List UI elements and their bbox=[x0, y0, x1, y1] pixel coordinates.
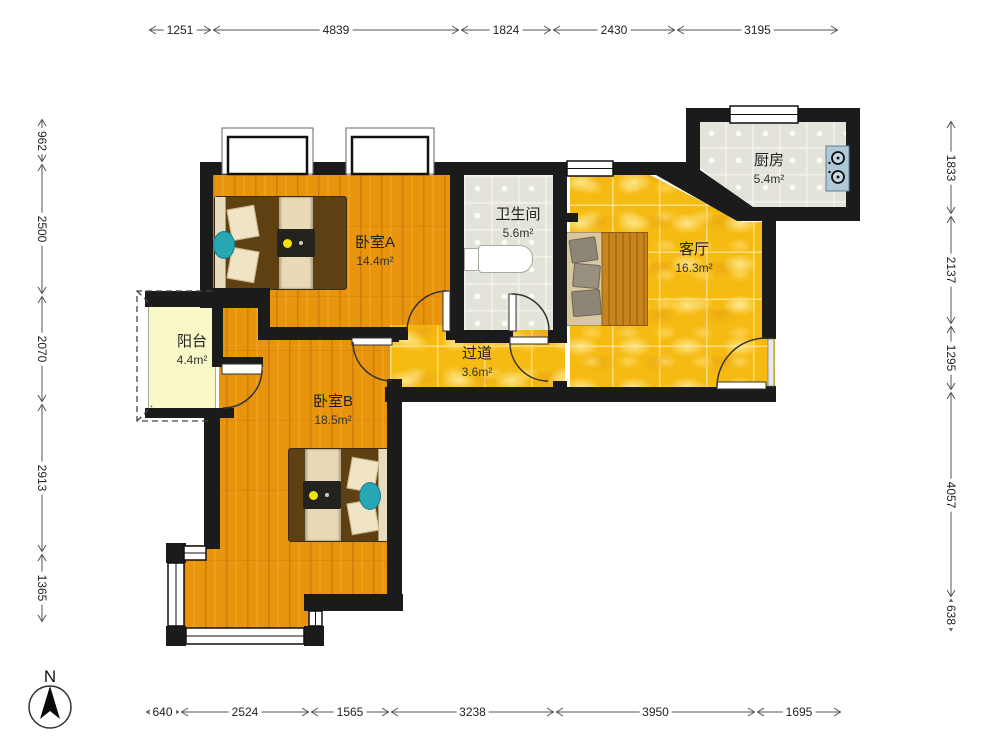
room-label-kitchen: 厨房 5.4m² bbox=[754, 151, 785, 187]
dimension-label: 2070 bbox=[35, 333, 49, 366]
stove bbox=[826, 146, 849, 191]
kitchen-window bbox=[730, 106, 798, 123]
dimension-label: 3195 bbox=[741, 23, 774, 37]
north-label: N bbox=[44, 667, 56, 687]
north-arrow-icon bbox=[29, 686, 71, 728]
dimension-label: 1565 bbox=[334, 705, 367, 719]
bedroom-a-door bbox=[407, 291, 450, 331]
dimension-label: 1251 bbox=[164, 23, 197, 37]
plan-overlay bbox=[0, 0, 1000, 750]
bay-window bbox=[228, 137, 307, 174]
floorplan-canvas: 卧室A 14.4m² 卫生间 5.6m² 厨房 5.4m² 客厅 16.3m² … bbox=[0, 0, 1000, 750]
dimension-label: 2500 bbox=[35, 213, 49, 246]
living-room-door bbox=[510, 337, 548, 381]
room-label-bedroom-b: 卧室B 18.5m² bbox=[313, 392, 353, 428]
room-label-balcony: 阳台 4.4m² bbox=[177, 332, 208, 368]
dimension-label: 1824 bbox=[490, 23, 523, 37]
balcony-door bbox=[222, 364, 262, 408]
dimension-label: 2430 bbox=[598, 23, 631, 37]
bay-window-corner bbox=[184, 546, 206, 560]
dimension-label: 4839 bbox=[320, 23, 353, 37]
entry-door bbox=[717, 338, 766, 389]
room-label-bedroom-a: 卧室A 14.4m² bbox=[355, 233, 395, 269]
walls bbox=[145, 108, 860, 646]
bay-window-bottom bbox=[186, 628, 304, 644]
bay-window-right bbox=[309, 611, 322, 626]
dimension-label: 962 bbox=[35, 127, 49, 153]
dimension-label: 2524 bbox=[229, 705, 262, 719]
living-room-window bbox=[567, 161, 613, 176]
dimension-label: 1695 bbox=[783, 705, 816, 719]
dimension-label: 4057 bbox=[944, 478, 958, 511]
room-label-bathroom: 卫生间 5.6m² bbox=[495, 205, 540, 241]
dimension-label: 2137 bbox=[944, 254, 958, 287]
dimension-label: 2913 bbox=[35, 462, 49, 495]
dimension-label: 638 bbox=[944, 602, 958, 628]
room-label-hallway: 过道 3.6m² bbox=[462, 344, 493, 380]
entry-threshold bbox=[768, 339, 774, 386]
bedroom-b-door bbox=[352, 338, 392, 381]
dimension-label: 1833 bbox=[944, 151, 958, 184]
dimension-label: 1365 bbox=[35, 572, 49, 605]
dimension-label: 640 bbox=[149, 705, 175, 719]
room-label-living-room: 客厅 16.3m² bbox=[675, 240, 712, 276]
dimension-label: 1295 bbox=[944, 342, 958, 375]
bay-window bbox=[352, 137, 428, 174]
bathroom-door bbox=[509, 294, 549, 331]
dimension-label: 3950 bbox=[639, 705, 672, 719]
dimension-label: 3238 bbox=[456, 705, 489, 719]
bay-window-left bbox=[168, 563, 184, 626]
